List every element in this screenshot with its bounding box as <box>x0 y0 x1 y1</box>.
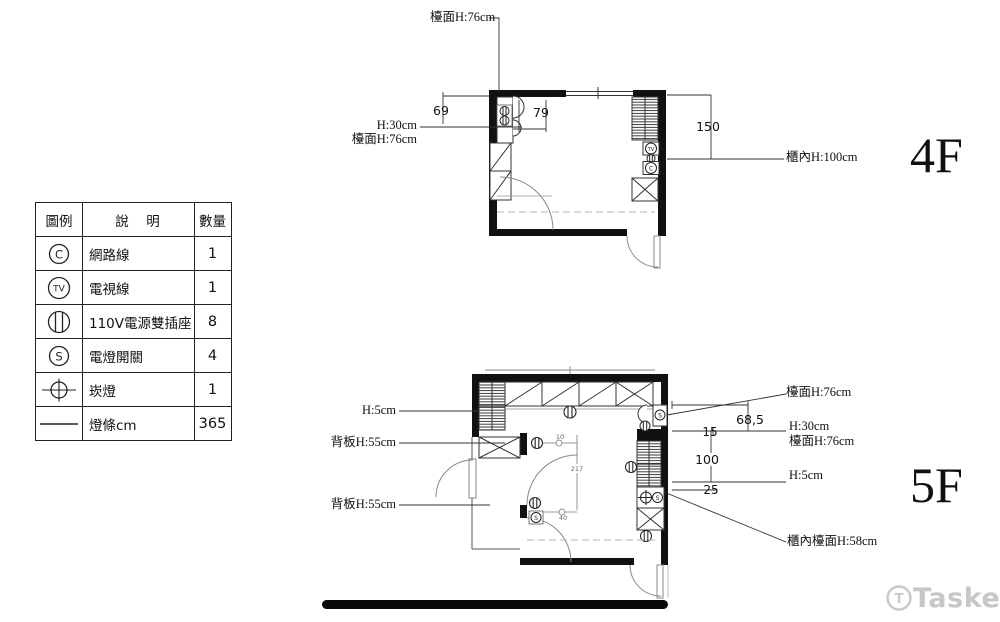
f4-counter-top-label: 檯面H:76cm <box>430 11 495 25</box>
floor4-plan: TV C <box>420 18 784 268</box>
dim-40: 40 <box>559 514 567 522</box>
dimension-line <box>443 92 489 124</box>
leader-line <box>489 18 499 92</box>
floorplan-page: 圖例 說 明 數量 C 網路線 1 TV 電視線 1 110V電源雙插座 8 <box>0 0 1000 622</box>
svg-text:TV: TV <box>647 147 655 153</box>
wall <box>520 558 634 565</box>
network-symbol: C <box>646 163 657 174</box>
svg-text:S: S <box>658 413 662 420</box>
switch-symbol: S <box>655 410 665 420</box>
door-arc <box>436 460 473 497</box>
dim-217: 217 <box>571 465 583 473</box>
light-strip-bar <box>322 600 668 609</box>
cabinet-diagonal <box>490 143 511 200</box>
door-leaf <box>654 236 660 268</box>
closet-x-box <box>479 437 520 458</box>
dim-150: 150 <box>696 119 720 134</box>
leader-line <box>664 492 786 542</box>
outlet-symbol <box>500 107 509 116</box>
closet-x-box <box>637 508 664 530</box>
outlet-symbol <box>626 462 637 473</box>
tasker-watermark: Tasker <box>913 583 1000 614</box>
dim-100: 100 <box>695 452 719 467</box>
fixture-bump <box>513 120 521 136</box>
plan-drawing: TV C <box>0 0 1000 622</box>
switch-symbol: S <box>653 493 663 503</box>
f5-h5-left-label: H:5cm <box>296 404 396 418</box>
door-leaf <box>469 459 476 498</box>
fixture-bump <box>638 405 647 423</box>
wall <box>489 90 566 97</box>
door-arc <box>630 565 661 596</box>
f5-back2-label: 背板H:55cm <box>296 498 396 512</box>
dim-15: 15 <box>702 425 717 439</box>
wall-stub <box>637 429 668 441</box>
cabinet-hatched <box>479 382 505 430</box>
door-arc <box>627 236 658 267</box>
small-dimension-lines <box>543 435 577 515</box>
dim-69: 69 <box>433 103 449 118</box>
dimension-line <box>672 401 786 490</box>
dim-79: 79 <box>533 105 549 120</box>
closet-x-box <box>632 178 658 201</box>
wall <box>472 374 479 437</box>
f5-back1-label: 背板H:55cm <box>296 436 396 450</box>
f5-h30-label: H:30cm <box>789 420 829 434</box>
fixture-bump <box>513 96 524 118</box>
tasker-logo-icon: T <box>888 587 911 610</box>
svg-text:S: S <box>656 495 660 502</box>
outlet-symbol <box>532 438 543 449</box>
svg-text:T: T <box>895 592 904 607</box>
f5-counter-right-label: 檯面H:76cm <box>786 386 851 400</box>
door-leaf <box>657 565 663 598</box>
floor4-name: 4F <box>910 126 963 184</box>
f5-h5-right-label: H:5cm <box>789 469 823 483</box>
f5-counter-right2-label: 檯面H:76cm <box>789 435 854 449</box>
wall <box>661 374 668 565</box>
cabinet-hatched <box>632 97 658 140</box>
floor5-name: 5F <box>910 456 963 514</box>
dimension-line <box>667 95 784 159</box>
svg-text:C: C <box>649 166 653 173</box>
wall <box>472 374 668 382</box>
outlet-symbol <box>500 116 509 125</box>
svg-text:S: S <box>534 515 538 522</box>
window <box>566 87 633 99</box>
closet-row <box>505 382 653 409</box>
leader-line <box>667 394 786 415</box>
dim-68-5: 68,5 <box>736 412 764 427</box>
switch-symbol: S <box>531 513 541 523</box>
interior-wall <box>520 505 527 518</box>
dim-25: 25 <box>703 483 718 497</box>
interior-wall <box>520 433 527 455</box>
cabinet-hatched <box>637 441 661 487</box>
wall <box>489 229 627 236</box>
f4-h30-label: H:30cm <box>317 119 417 133</box>
tv-symbol: TV <box>646 143 657 154</box>
beam-line <box>485 366 655 374</box>
f4-cabinet-inner-label: 櫃內H:100cm <box>786 151 858 165</box>
f5-cabinet-counter-label: 櫃內檯面H:58cm <box>787 535 877 549</box>
outlet-symbol <box>564 406 576 418</box>
f4-counter-left-label: 檯面H:76cm <box>317 133 417 147</box>
outlet-symbol <box>640 421 650 431</box>
outlet-symbol <box>530 498 541 509</box>
dim-10: 10 <box>556 433 564 441</box>
